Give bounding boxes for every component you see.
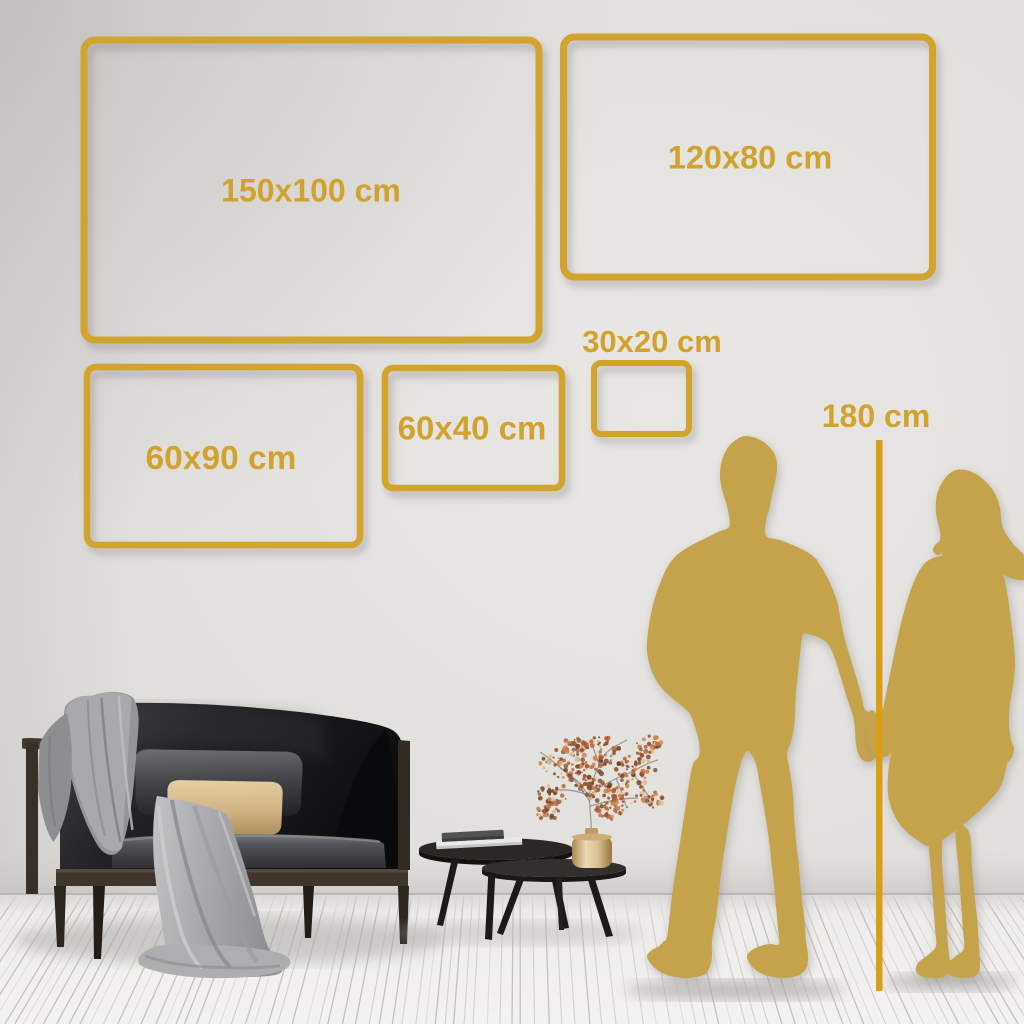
svg-text:150x100 cm: 150x100 cm: [221, 173, 401, 209]
svg-text:60x40 cm: 60x40 cm: [398, 410, 547, 447]
svg-text:60x90 cm: 60x90 cm: [146, 440, 297, 477]
svg-text:30x20 cm: 30x20 cm: [582, 324, 722, 359]
svg-text:120x80 cm: 120x80 cm: [668, 140, 832, 176]
svg-text:180 cm: 180 cm: [822, 398, 931, 434]
